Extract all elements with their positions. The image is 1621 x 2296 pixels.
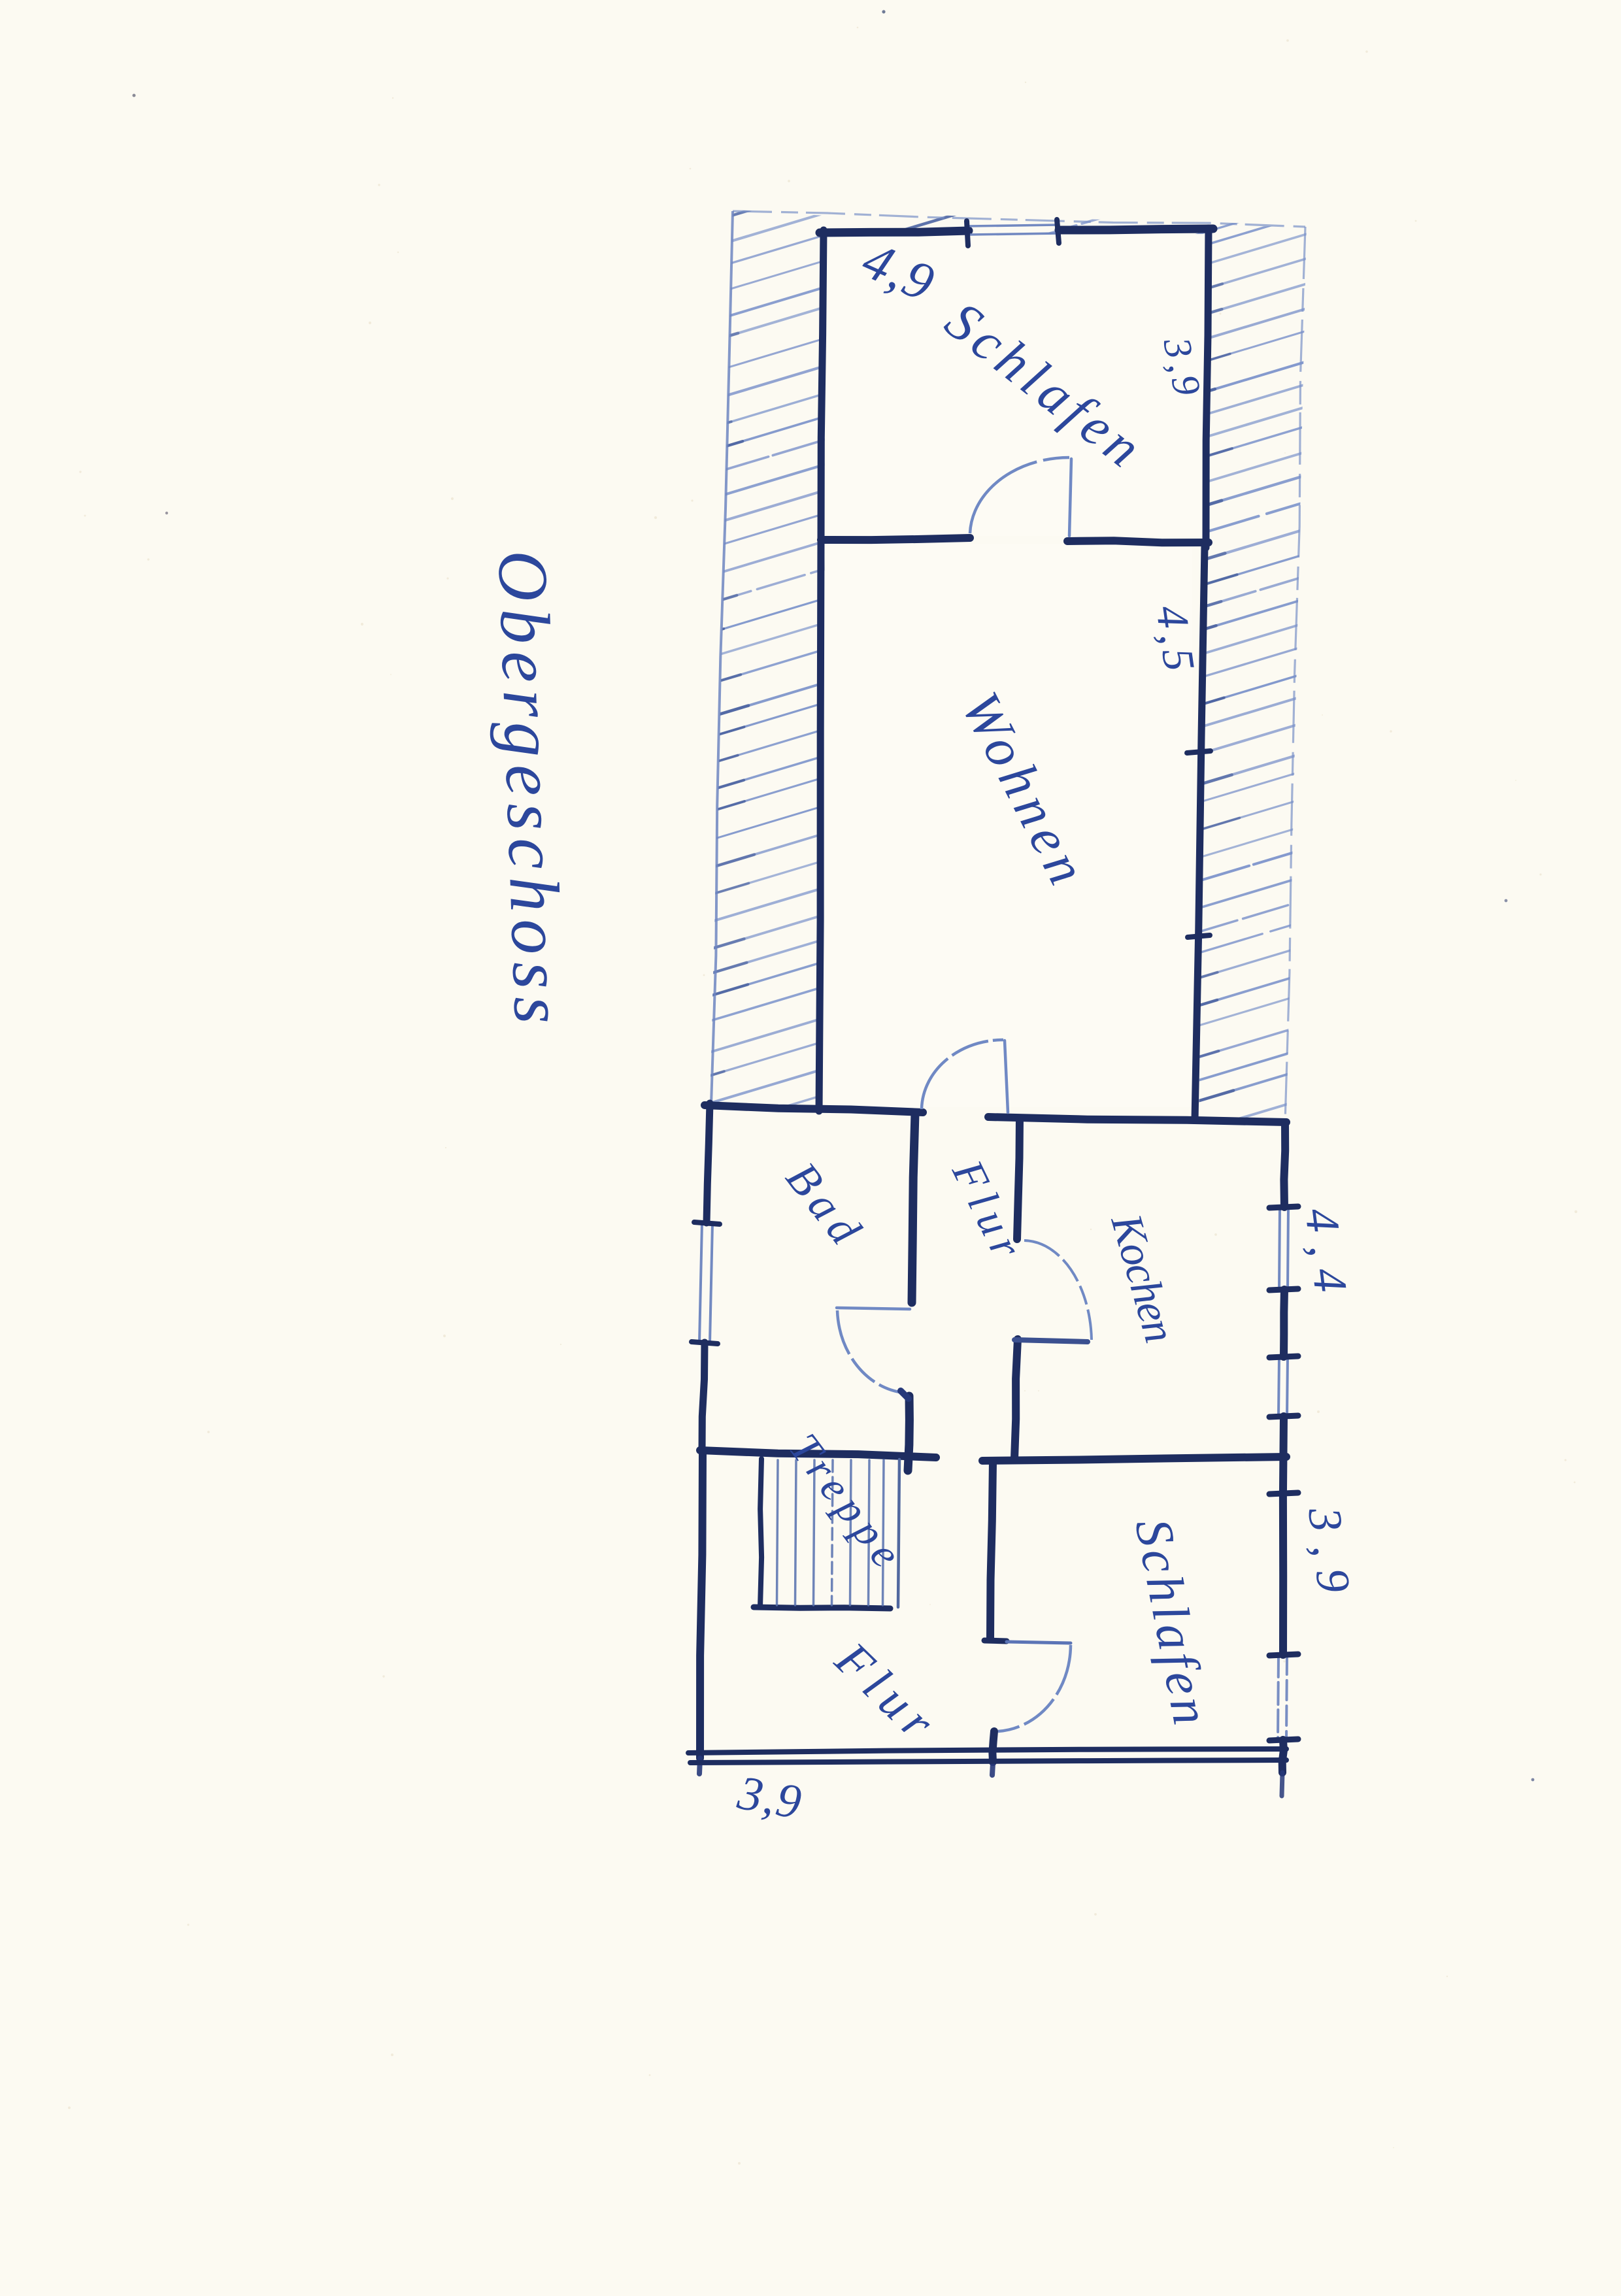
svg-text:3,9: 3,9 [733, 1766, 805, 1830]
svg-text:3,9: 3,9 [1298, 1504, 1360, 1595]
svg-text:4,4: 4,4 [1295, 1205, 1357, 1295]
svg-text:4,5: 4,5 [1146, 603, 1205, 674]
